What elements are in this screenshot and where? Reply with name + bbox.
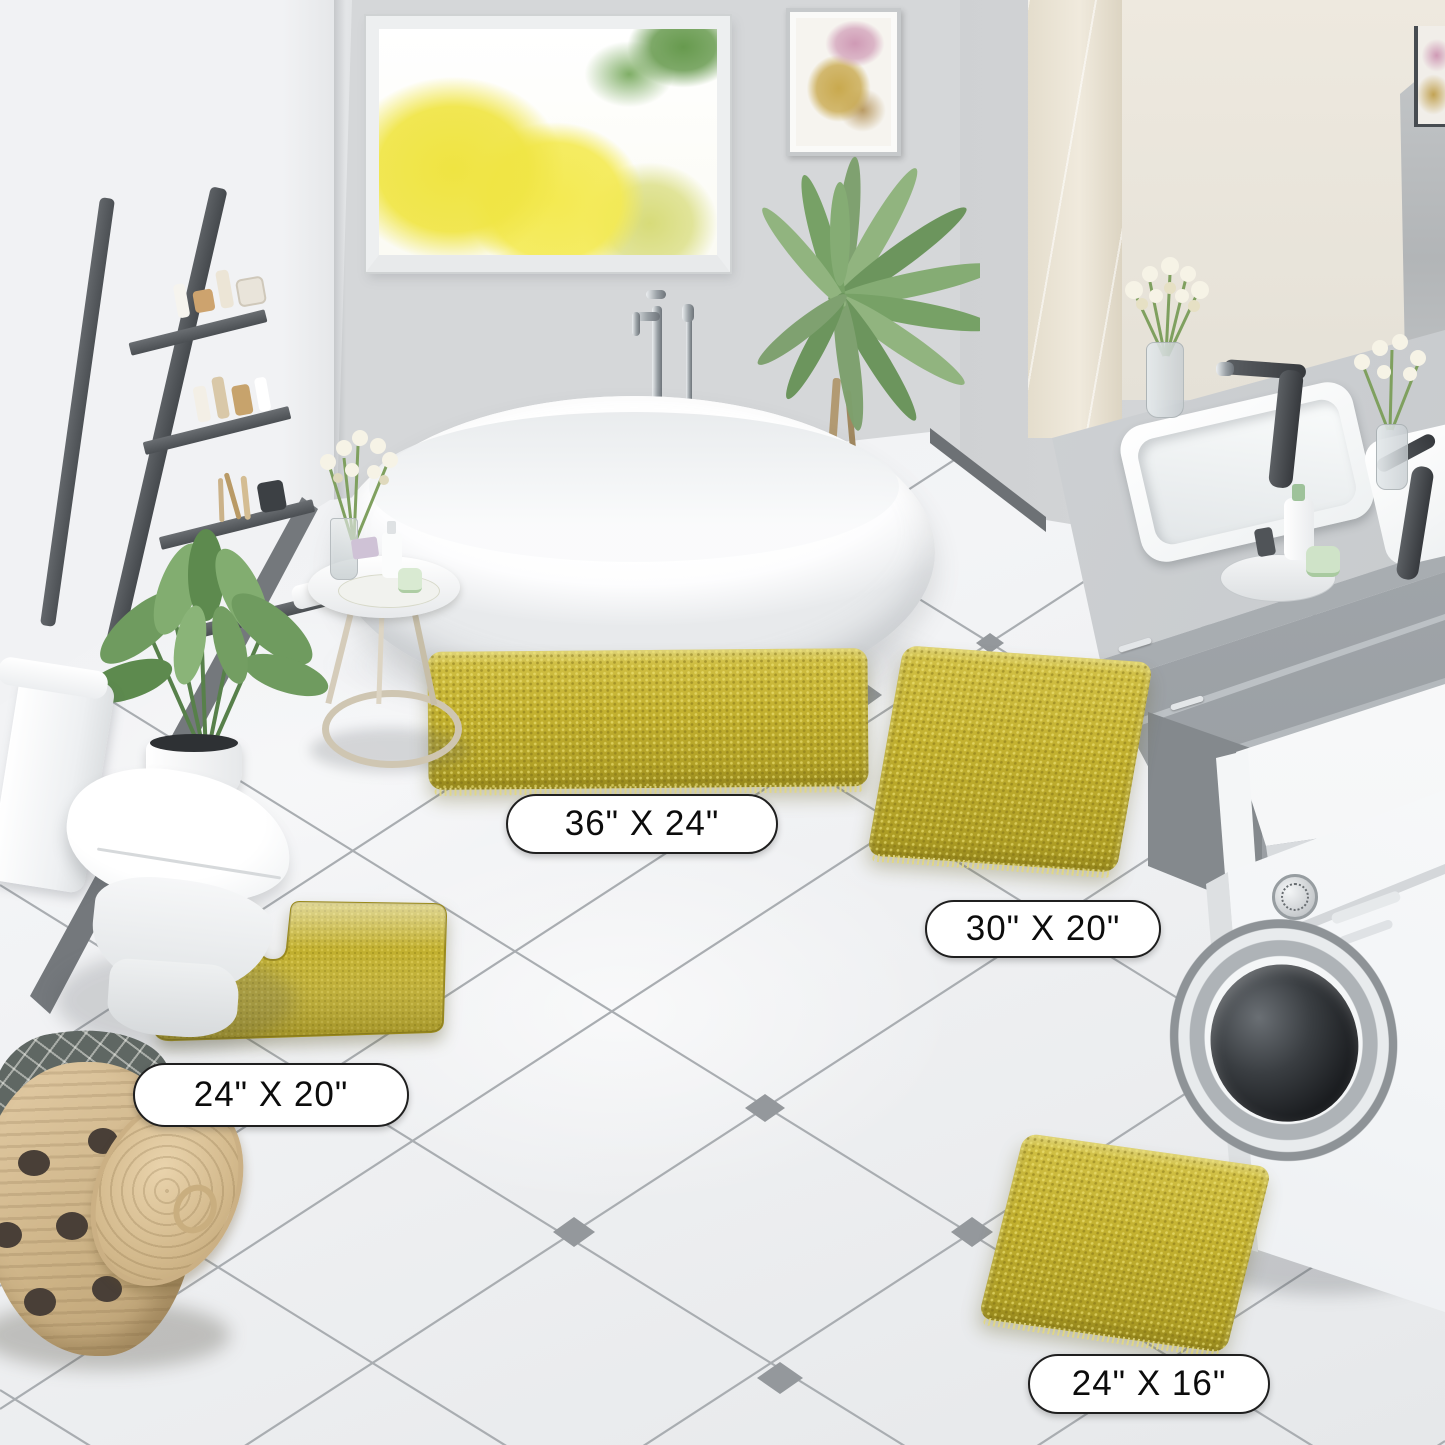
- soap-pump-top: [1292, 484, 1305, 501]
- flowers-right-vase: [1322, 318, 1445, 433]
- rug-medium-30x20: [867, 645, 1153, 872]
- plant-pot-pebbles: [150, 734, 238, 752]
- size-label-30x20-text: 30" X 20": [966, 909, 1121, 949]
- bathtub-rim-opening: [369, 412, 899, 562]
- rug-large-36x24: [427, 648, 868, 790]
- basket-dot: [18, 1150, 50, 1176]
- tub-handshower-head: [682, 304, 694, 322]
- size-label-24x16-text: 24" X 16": [1072, 1364, 1227, 1404]
- table-lavender-box: [351, 536, 380, 559]
- glass-vase-left: [1146, 342, 1184, 418]
- basket-lid-handle: [166, 1178, 225, 1241]
- basket-dot: [56, 1212, 88, 1240]
- bathroom-product-photo: 36" X 24" 30" X 20" 24" X 20" 24" X 16": [0, 0, 1445, 1445]
- faucet-left-spout-tip: [1216, 362, 1234, 376]
- basket-dot: [24, 1288, 56, 1316]
- table-green-jar: [398, 568, 422, 593]
- tub-faucet-knob: [646, 290, 666, 299]
- glass-vase-right: [1376, 424, 1408, 490]
- size-label-24x20: 24" X 20": [133, 1063, 409, 1127]
- table-tray: [338, 574, 440, 608]
- size-label-30x20: 30" X 20": [925, 900, 1161, 958]
- size-label-24x20-text: 24" X 20": [194, 1075, 349, 1115]
- table-flowers: [296, 418, 426, 543]
- size-label-36x24-text: 36" X 24": [565, 804, 720, 844]
- table-pump-top: [387, 521, 396, 534]
- tub-faucet-spout-drop: [632, 312, 640, 336]
- rug-small-24x16: [978, 1133, 1272, 1353]
- size-label-36x24: 36" X 24": [506, 794, 778, 854]
- size-label-24x16: 24" X 16": [1028, 1354, 1270, 1414]
- green-jar: [1306, 546, 1340, 577]
- basket-dot: [92, 1276, 122, 1302]
- basket-dot: [0, 1222, 22, 1248]
- side-table-base-ring: [322, 690, 462, 768]
- palm-leaves: [752, 156, 980, 433]
